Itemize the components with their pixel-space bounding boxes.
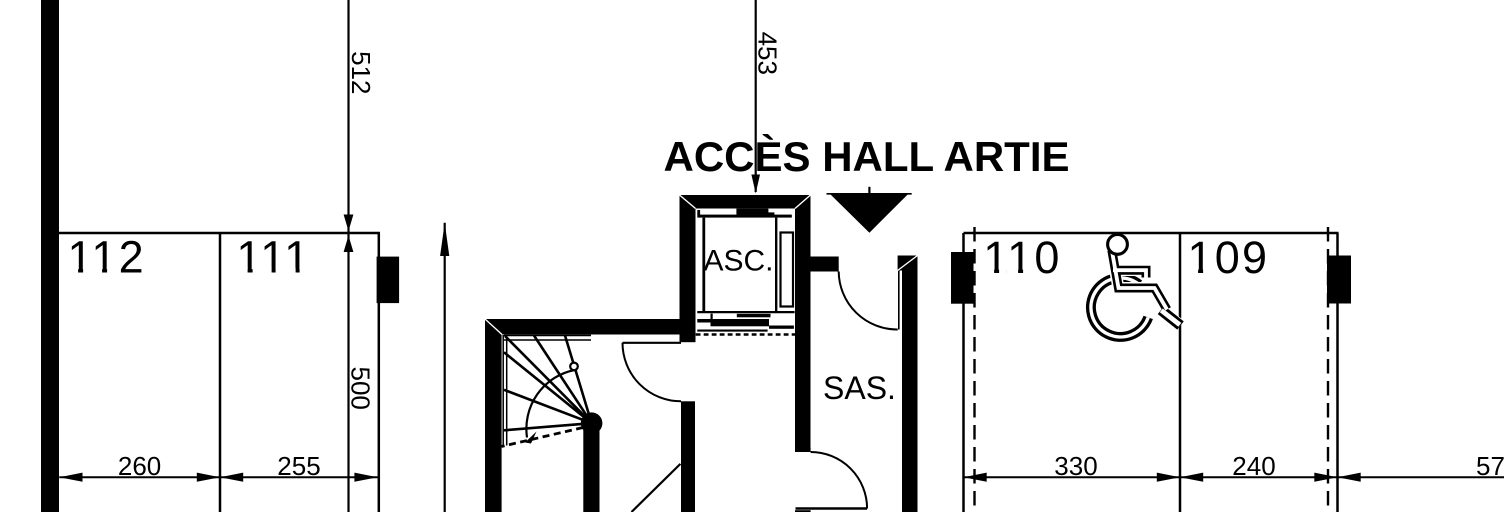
svg-text:453: 453 (753, 32, 783, 75)
svg-text:255: 255 (277, 451, 320, 481)
svg-text:ACCÈS HALL ARTIE: ACCÈS HALL ARTIE (664, 133, 1070, 180)
svg-text:240: 240 (1232, 451, 1275, 481)
svg-text:570: 570 (1476, 451, 1504, 481)
svg-text:512: 512 (346, 51, 376, 94)
svg-text:260: 260 (118, 451, 161, 481)
svg-text:500: 500 (346, 367, 376, 410)
svg-text:330: 330 (1054, 451, 1097, 481)
svg-text:ASC.: ASC. (704, 245, 774, 278)
svg-text:SAS.: SAS. (823, 370, 896, 406)
